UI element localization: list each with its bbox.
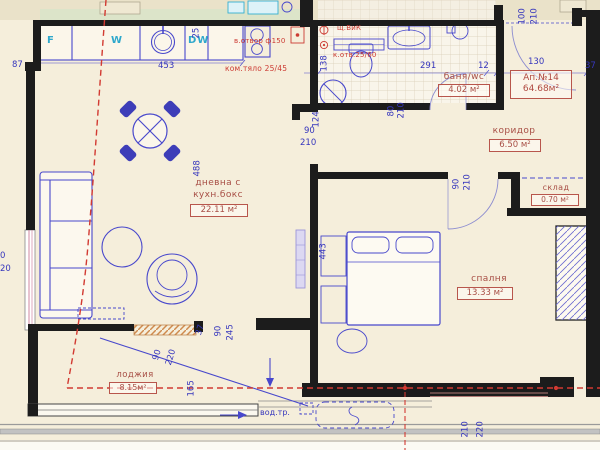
dim-488: 488 bbox=[194, 160, 203, 176]
storage-area: 0.70 м² bbox=[531, 194, 579, 206]
living-room-area: 22.11 м² bbox=[190, 204, 248, 217]
ottoman bbox=[337, 329, 367, 353]
plan-linework bbox=[0, 0, 600, 450]
storage-name: склад bbox=[534, 184, 578, 192]
apartment-number: Ап.№14 bbox=[514, 73, 568, 84]
wardrobe-hatch bbox=[556, 226, 590, 320]
radiator-bedroom-wall bbox=[296, 230, 305, 288]
vent-opening-note: в.отвор ф150 bbox=[234, 38, 286, 45]
kitchen-counter bbox=[38, 25, 243, 60]
sofa bbox=[40, 172, 92, 318]
floor-plan: F W DW в.отвор ф150 ком.тяло 25/45 щ.ВиК… bbox=[0, 0, 600, 450]
water-pipe-note: вод.тр. bbox=[260, 409, 290, 417]
dim-bath-door-w: 80 bbox=[388, 106, 397, 117]
dim-bath-door-h: 210 bbox=[398, 102, 407, 118]
left-window bbox=[25, 230, 35, 330]
dim-87: 87 bbox=[12, 61, 23, 70]
corridor-name: коридор bbox=[484, 127, 544, 136]
loggia-name: лоджия bbox=[110, 371, 160, 380]
dim-left-cut-20: 20 bbox=[0, 265, 11, 274]
living-room-name2: кухн.бокс bbox=[180, 191, 256, 200]
bedroom-name: спалня bbox=[459, 275, 519, 284]
dim-window-h: 245 bbox=[227, 324, 236, 340]
dining-table bbox=[118, 99, 181, 162]
window-sill-hatch bbox=[134, 325, 196, 335]
dim-entry-door-h: 210 bbox=[531, 8, 540, 24]
corridor-area: 6.50 м² bbox=[489, 139, 541, 152]
dim-37-right: 37 bbox=[585, 62, 596, 71]
duct-note: к.отв.25/60 bbox=[333, 52, 377, 59]
bedroom-area: 13.33 м² bbox=[457, 287, 513, 300]
dim-bottom-210: 210 bbox=[462, 421, 471, 437]
apartment-area: 64.68м² bbox=[514, 84, 568, 95]
dim-entry-door-w: 100 bbox=[519, 8, 528, 24]
dim-bed-door-h: 210 bbox=[464, 174, 473, 190]
dim-left-cut-0: 0 bbox=[0, 252, 5, 261]
loggia-parapet bbox=[28, 404, 258, 416]
dim-bed-door-w: 90 bbox=[453, 179, 462, 190]
dim-12: 12 bbox=[478, 62, 489, 71]
riser-note: щ.ВиК bbox=[337, 25, 361, 32]
coffee-table bbox=[102, 227, 142, 267]
bed bbox=[347, 232, 440, 325]
dim-living-door-w: 90 bbox=[304, 127, 315, 136]
bathroom-area: 4.02 м² bbox=[438, 84, 490, 97]
apartment-label: Ап.№14 64.68м² bbox=[510, 70, 572, 99]
living-room-name: дневна с bbox=[186, 179, 250, 188]
dim-130: 130 bbox=[528, 58, 544, 67]
bathroom-name: баня/wc bbox=[436, 73, 492, 82]
dim-window-w: 90 bbox=[215, 326, 224, 337]
washing-machine-label: W bbox=[111, 36, 123, 46]
dim-bottom-220: 220 bbox=[477, 421, 486, 437]
chimney-note: ком.тяло 25/45 bbox=[225, 65, 287, 73]
dim-138: 138 bbox=[321, 55, 330, 71]
nightstand-bottom bbox=[321, 286, 346, 323]
fridge-label: F bbox=[47, 36, 55, 46]
dim-443: 443 bbox=[320, 243, 329, 259]
dim-291: 291 bbox=[420, 62, 436, 71]
loggia-area: 8.15м² bbox=[109, 382, 157, 394]
dim-living-door-h: 210 bbox=[300, 139, 316, 148]
walls bbox=[25, 0, 600, 410]
dim-165: 165 bbox=[188, 380, 197, 396]
armchair bbox=[147, 254, 197, 304]
dim-453: 453 bbox=[158, 62, 174, 71]
dim-25: 25 bbox=[193, 28, 202, 39]
